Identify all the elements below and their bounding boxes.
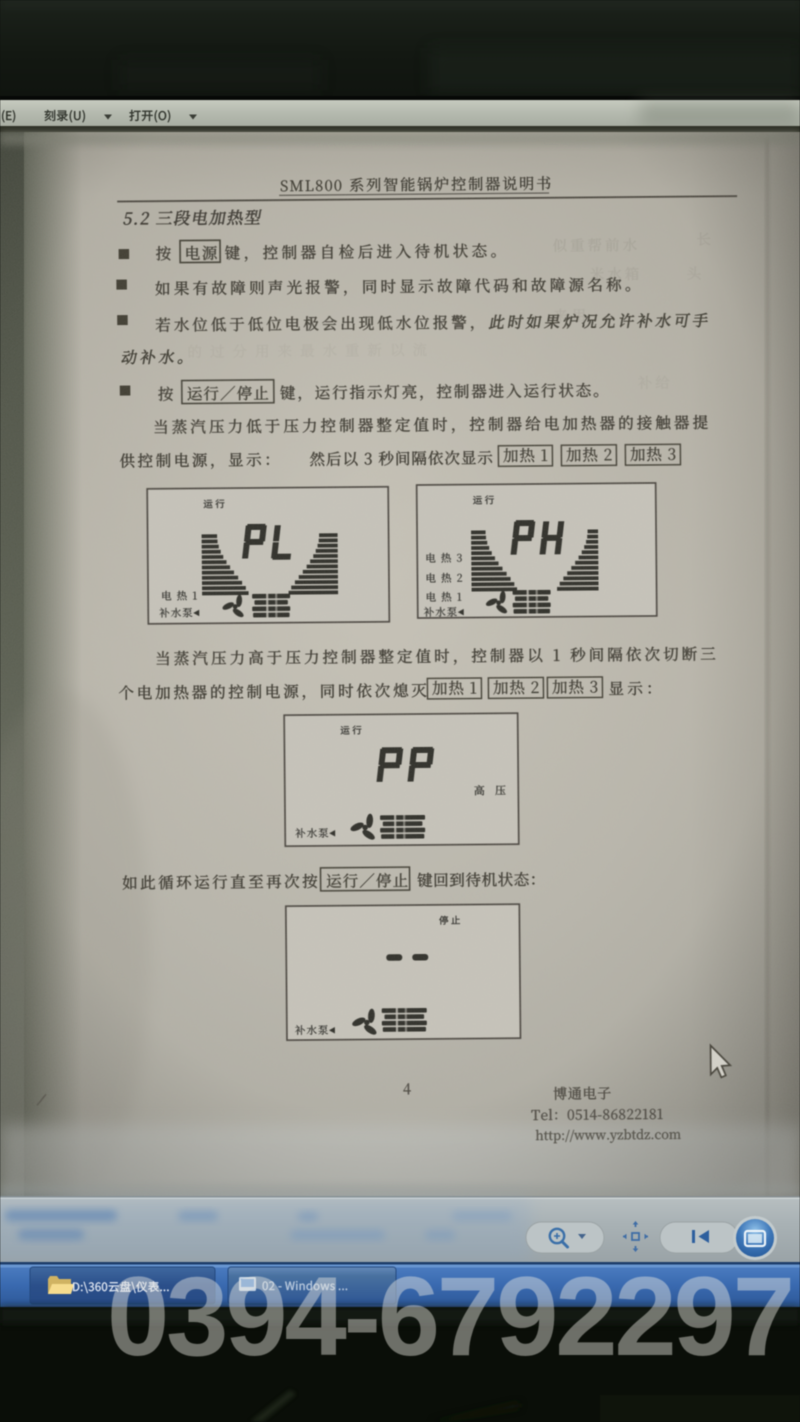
svg-text:0394-6792297: 0394-6792297 [107,1254,795,1379]
